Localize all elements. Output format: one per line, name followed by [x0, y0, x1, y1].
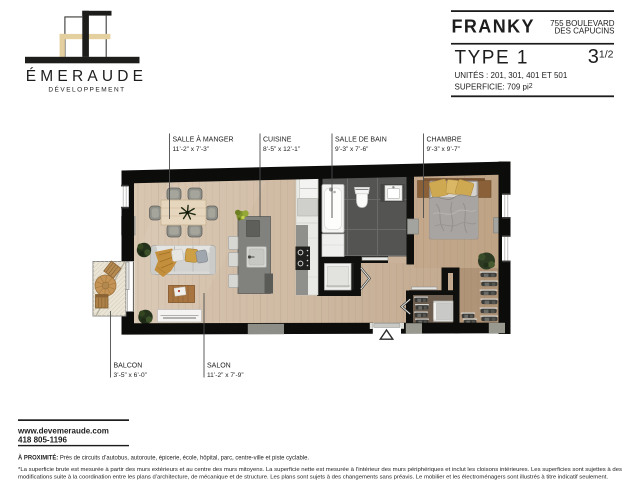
- svg-text:SUPERFICIE: 709 pi2: SUPERFICIE: 709 pi2: [455, 83, 533, 92]
- svg-text:SALON: SALON: [207, 363, 231, 370]
- svg-text:9’-3” x 9’-7”: 9’-3” x 9’-7”: [427, 146, 460, 153]
- svg-text:418 805-1196: 418 805-1196: [18, 436, 67, 445]
- svg-text:FRANKY: FRANKY: [452, 17, 535, 37]
- svg-text:DES CAPUCINS: DES CAPUCINS: [554, 27, 614, 36]
- svg-text:À PROXIMITÉ: Près de circuits: À PROXIMITÉ: Près de circuits d’autobus,…: [18, 453, 309, 462]
- svg-text:11’-2” x 7’-9”: 11’-2” x 7’-9”: [207, 372, 244, 379]
- svg-text:www.devemeraude.com: www.devemeraude.com: [17, 427, 109, 436]
- svg-text:SALLE À MANGER: SALLE À MANGER: [173, 135, 234, 144]
- svg-text:SALLE DE BAIN: SALLE DE BAIN: [335, 137, 387, 144]
- svg-text:*La superficie brute est mesur: *La superficie brute est mesurée à parti…: [18, 467, 622, 473]
- svg-text:modifications suite à la coord: modifications suite à la coordination en…: [18, 474, 608, 480]
- svg-text:31/2: 31/2: [588, 46, 614, 68]
- svg-text:UNITÉS : 201, 301, 401 ET 501: UNITÉS : 201, 301, 401 ET 501: [455, 71, 568, 80]
- svg-text:3’-5” x 6’-0”: 3’-5” x 6’-0”: [114, 372, 147, 379]
- svg-text:ÉMERAUDE: ÉMERAUDE: [26, 68, 147, 85]
- svg-text:8’-5” x 12’-1”: 8’-5” x 12’-1”: [263, 146, 300, 153]
- svg-text:DÉVELOPPEMENT: DÉVELOPPEMENT: [48, 85, 125, 94]
- svg-text:9’-3” x 7’-6”: 9’-3” x 7’-6”: [335, 146, 368, 153]
- svg-text:CHAMBRE: CHAMBRE: [427, 137, 462, 144]
- svg-text:11’-2” x 7’-3”: 11’-2” x 7’-3”: [173, 146, 210, 153]
- svg-text:CUISINE: CUISINE: [263, 137, 292, 144]
- svg-text:TYPE 1: TYPE 1: [455, 48, 529, 69]
- svg-text:BALCON: BALCON: [114, 363, 143, 370]
